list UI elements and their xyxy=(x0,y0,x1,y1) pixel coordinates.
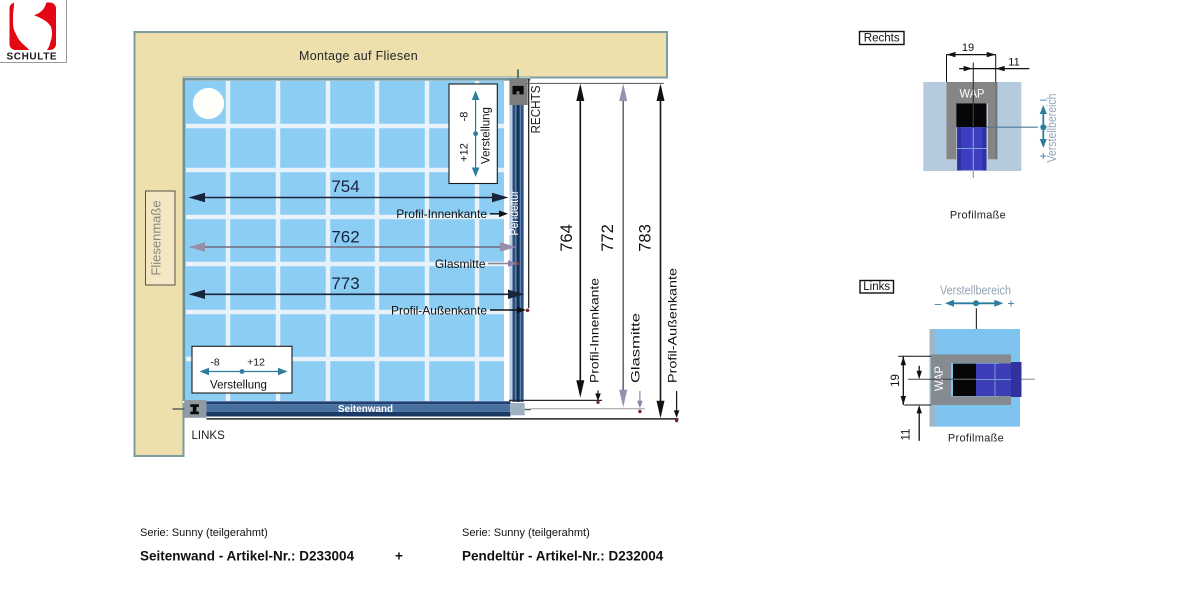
svg-text:Glasmitte: Glasmitte xyxy=(629,313,643,383)
svg-text:Serie: Sunny (teilgerahmt): Serie: Sunny (teilgerahmt) xyxy=(140,527,268,539)
svg-text:19: 19 xyxy=(890,374,902,387)
svg-text:SCHULTE: SCHULTE xyxy=(7,52,58,63)
svg-text:Profil-Innenkante: Profil-Innenkante xyxy=(588,278,602,383)
svg-text:783: 783 xyxy=(637,224,655,252)
svg-text:Profil-Außenkante: Profil-Außenkante xyxy=(666,268,680,383)
svg-text:Rechts: Rechts xyxy=(864,33,900,45)
svg-text:Links: Links xyxy=(863,281,890,293)
svg-text:Glasmitte: Glasmitte xyxy=(435,257,486,271)
svg-text:WAP: WAP xyxy=(934,366,946,391)
svg-text:Profilmaße: Profilmaße xyxy=(950,210,1006,222)
svg-text:–: – xyxy=(935,297,942,311)
svg-text:Pendeltür: Pendeltür xyxy=(509,190,521,235)
svg-text:754: 754 xyxy=(331,177,359,196)
svg-text:+12: +12 xyxy=(459,143,471,162)
svg-text:-8: -8 xyxy=(459,112,471,122)
svg-text:Profilmaße: Profilmaße xyxy=(948,433,1004,445)
svg-text:11: 11 xyxy=(1008,57,1019,69)
svg-text:Pendeltür - Artikel-Nr.: D2320: Pendeltür - Artikel-Nr.: D232004 xyxy=(462,549,664,564)
svg-text:+: + xyxy=(1007,297,1014,311)
svg-text:Profil-Innenkante: Profil-Innenkante xyxy=(396,207,487,221)
svg-text:773: 773 xyxy=(331,274,359,293)
svg-text:Verstellbereich: Verstellbereich xyxy=(940,284,1011,298)
svg-text:+: + xyxy=(395,549,403,564)
svg-text:Profil-Außenkante: Profil-Außenkante xyxy=(391,303,487,317)
svg-text:Montage auf Fliesen: Montage auf Fliesen xyxy=(299,49,418,63)
svg-text:WAP: WAP xyxy=(960,87,985,101)
svg-text:Serie: Sunny (teilgerahmt): Serie: Sunny (teilgerahmt) xyxy=(462,527,590,539)
svg-text:Fliesenmaße: Fliesenmaße xyxy=(149,200,164,275)
svg-text:Verstellbereich: Verstellbereich xyxy=(1045,93,1059,162)
svg-text:Seitenwand: Seitenwand xyxy=(338,404,394,415)
svg-text:-8: -8 xyxy=(210,357,219,369)
svg-text:772: 772 xyxy=(599,224,617,252)
svg-text:764: 764 xyxy=(558,224,576,252)
svg-text:11: 11 xyxy=(901,429,913,441)
svg-text:Verstellung: Verstellung xyxy=(481,107,493,164)
svg-text:Seitenwand - Artikel-Nr.: D233: Seitenwand - Artikel-Nr.: D233004 xyxy=(140,549,355,564)
svg-text:LINKS: LINKS xyxy=(192,430,226,442)
svg-text:762: 762 xyxy=(331,228,359,247)
svg-text:RECHTS: RECHTS xyxy=(528,85,543,133)
svg-text:+12: +12 xyxy=(247,357,265,369)
svg-text:19: 19 xyxy=(962,42,974,54)
svg-text:Verstellung: Verstellung xyxy=(210,380,267,392)
